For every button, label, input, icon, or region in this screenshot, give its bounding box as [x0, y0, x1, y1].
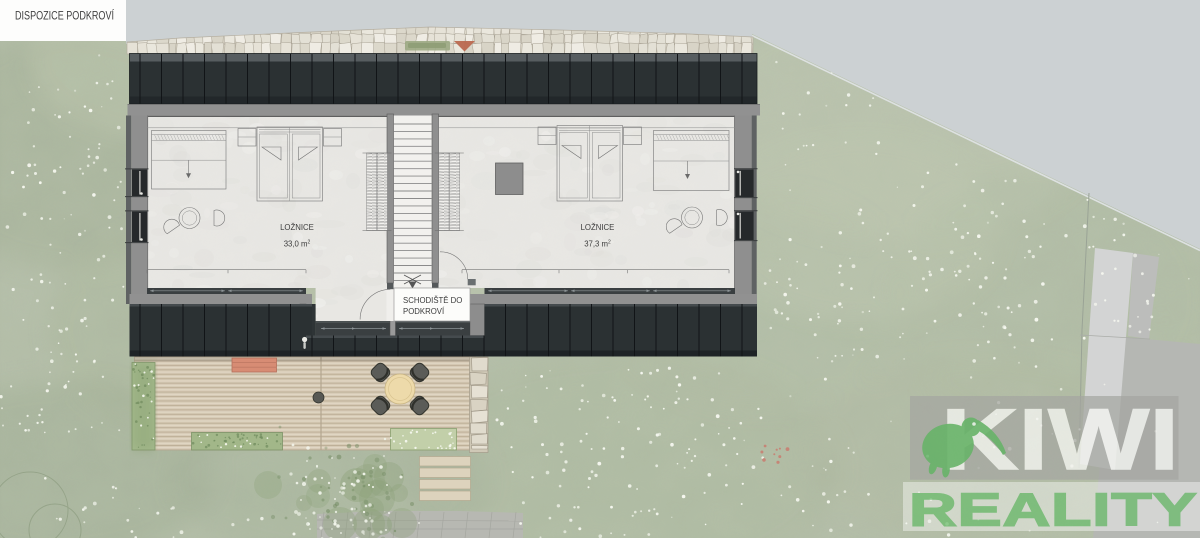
svg-text:LOŽNICE: LOŽNICE — [581, 223, 615, 232]
svg-text:PODKROVÍ: PODKROVÍ — [403, 307, 445, 316]
svg-text:37,3 m2: 37,3 m2 — [584, 239, 611, 248]
svg-text:REALITY: REALITY — [909, 484, 1197, 536]
svg-text:DISPOZICE PODKROVÍ: DISPOZICE PODKROVÍ — [15, 10, 115, 23]
svg-text:KIWI: KIWI — [941, 392, 1179, 488]
svg-text:SCHODIŠTĚ DO: SCHODIŠTĚ DO — [403, 296, 462, 305]
svg-text:LOŽNICE: LOŽNICE — [280, 223, 314, 232]
svg-text:33,0 m2: 33,0 m2 — [284, 239, 311, 248]
